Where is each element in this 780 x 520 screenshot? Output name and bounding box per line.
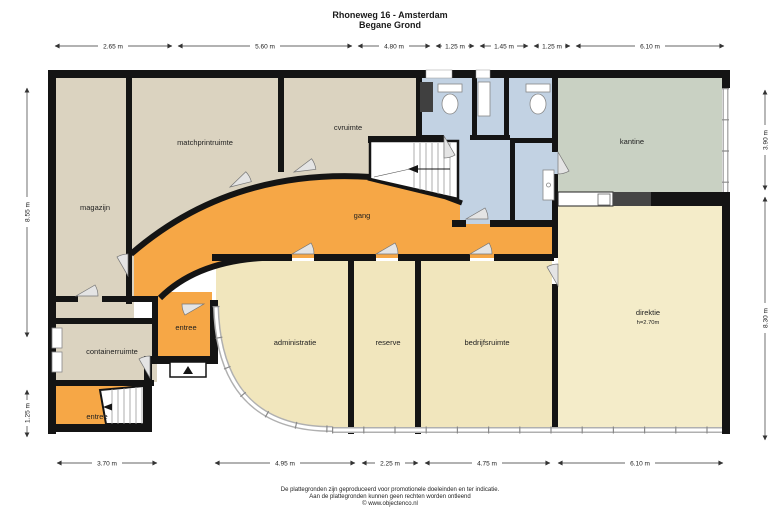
label-bedrijfsruimte: bedrijfsruimte <box>464 338 509 347</box>
dim-top-7: 6.10 m <box>640 44 660 51</box>
label-entree-bottom: entree <box>86 412 107 421</box>
label-administratie: administratie <box>274 338 317 347</box>
label-reserve: reserve <box>375 338 400 347</box>
dim-top-5: 1.45 m <box>494 44 514 51</box>
dimension-lines-bottom: 3.70 m 4.95 m 2.25 m 4.75 m 6.10 m <box>57 460 723 468</box>
dimension-lines-right: 3.90 m 8.30 m <box>762 90 770 440</box>
label-containerruimte: containerruimte <box>86 347 138 356</box>
dim-bottom-3: 2.25 m <box>380 461 400 468</box>
dim-bottom-2: 4.95 m <box>275 461 295 468</box>
dim-left-2: 1.25 m <box>25 403 32 423</box>
floorplan-page: Rhoneweg 16 - Amsterdam Begane Grond <box>0 0 780 520</box>
kitchen-sink <box>598 194 610 205</box>
dim-bottom-4: 4.75 m <box>477 461 497 468</box>
label-direktie: direktie <box>636 308 660 317</box>
dim-top-4: 1.25 m <box>445 44 465 51</box>
top-wall-window <box>426 70 452 78</box>
footer-copyright: © www.objectenco.nl <box>0 501 780 508</box>
dim-bottom-1: 3.70 m <box>97 461 117 468</box>
dim-top-2: 5.60 m <box>255 44 275 51</box>
plan-footer: De plattegronden zijn geproduceerd voor … <box>0 487 780 508</box>
dim-bottom-5: 6.10 m <box>630 461 650 468</box>
label-matchprintruimte: matchprintruimte <box>177 138 233 147</box>
entrance-vestibule <box>170 362 206 377</box>
footer-disclaimer-2: Aan de plattegronden kunnen geen rechten… <box>0 494 780 501</box>
utility-shaft <box>478 82 490 116</box>
label-kantine: kantine <box>620 137 644 146</box>
closet-fixture <box>52 328 62 348</box>
kitchen-block <box>613 192 651 206</box>
top-wall-window <box>476 70 490 78</box>
dimension-lines-top: 2.65 m 5.60 m 4.80 m 1.25 m 1.45 m 1.25 … <box>55 43 724 51</box>
dimension-lines-left: 8.55 m 1.25 m <box>24 88 32 437</box>
dim-top-1: 2.65 m <box>103 44 123 51</box>
label-magazijn: magazijn <box>80 203 110 212</box>
dim-top-6: 1.25 m <box>542 44 562 51</box>
label-cvruimte: cvruimte <box>334 123 362 132</box>
dim-left-1: 8.55 m <box>25 202 32 222</box>
label-entree-mid: entree <box>175 323 196 332</box>
duct-shaft <box>420 82 433 112</box>
shower-fixture <box>543 170 554 200</box>
dim-right-2: 8.30 m <box>763 308 770 328</box>
dim-right-1: 3.90 m <box>763 130 770 150</box>
label-gang: gang <box>354 211 371 220</box>
label-direktie-height: h=2.70m <box>637 320 660 326</box>
dim-top-3: 4.80 m <box>384 44 404 51</box>
footer-disclaimer-1: De plattegronden zijn geproduceerd voor … <box>0 487 780 494</box>
floorplan-drawing: magazijn matchprintruimte cvruimte gang … <box>0 0 780 520</box>
closet-fixture <box>52 352 62 372</box>
